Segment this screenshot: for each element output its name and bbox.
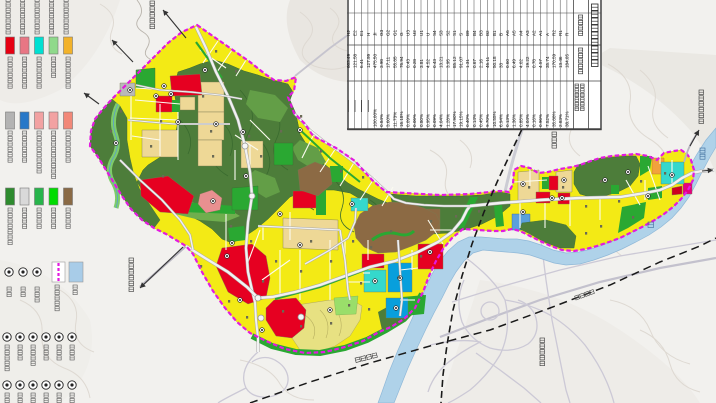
svg-text:R2: R2 [552, 30, 557, 36]
svg-text:B4: B4 [472, 30, 477, 36]
svg-text:0.80%: 0.80% [419, 114, 424, 127]
svg-text:76.94: 76.94 [399, 56, 404, 68]
svg-text:B: B [498, 33, 503, 36]
svg-text:17.90%: 17.90% [452, 111, 457, 127]
svg-text:1.31: 1.31 [465, 59, 470, 68]
svg-text:G1: G1 [392, 29, 397, 36]
svg-text:S4: S4 [432, 30, 437, 36]
svg-text:0.09%: 0.09% [432, 114, 437, 127]
svg-text:16.18%: 16.18% [399, 111, 404, 127]
svg-text:G2: G2 [386, 29, 391, 36]
svg-text:0.28: 0.28 [412, 59, 417, 68]
svg-text:4.57: 4.57 [538, 59, 543, 68]
svg-text:13.46: 13.46 [558, 56, 563, 68]
svg-text:9.70%: 9.70% [485, 114, 490, 127]
svg-text:17.11: 17.11 [386, 56, 391, 68]
svg-text:0.06%: 0.06% [412, 114, 417, 127]
svg-text:6.49: 6.49 [512, 59, 517, 68]
svg-text:6.94%: 6.94% [498, 114, 503, 127]
svg-text:91.07: 91.07 [459, 56, 464, 68]
svg-text:100.00%: 100.00% [372, 109, 377, 127]
svg-text:U3: U3 [406, 30, 411, 36]
svg-text:0.78: 0.78 [532, 59, 537, 68]
svg-text:0.84%: 0.84% [379, 114, 384, 127]
svg-text:A5: A5 [512, 30, 517, 36]
svg-text:170.59: 170.59 [552, 54, 557, 68]
svg-text:4.52: 4.52 [425, 59, 430, 68]
svg-text:19.15%: 19.15% [459, 111, 464, 127]
svg-text:E2: E2 [353, 30, 358, 36]
svg-text:B9: B9 [465, 30, 470, 36]
svg-text:A3: A3 [525, 30, 530, 36]
svg-text:U1: U1 [419, 30, 424, 36]
svg-text:127.99: 127.99 [366, 54, 371, 68]
svg-text:G: G [399, 32, 404, 36]
svg-text:0.95%: 0.95% [425, 114, 430, 127]
svg-text:0.13%: 0.13% [505, 114, 510, 127]
svg-text:1.36%: 1.36% [512, 114, 517, 127]
svg-text:0.09%: 0.09% [406, 114, 411, 127]
svg-text:0.85%: 0.85% [518, 114, 523, 127]
svg-text:3.81: 3.81 [419, 59, 424, 68]
svg-text:A2: A2 [532, 30, 537, 36]
svg-text:121.58: 121.58 [353, 54, 358, 68]
svg-text:4.04%: 4.04% [439, 114, 444, 127]
svg-text:0.67: 0.67 [472, 59, 477, 68]
svg-text:11.73%: 11.73% [392, 112, 397, 127]
svg-text:0.14%: 0.14% [472, 114, 477, 127]
svg-text:50.18: 50.18 [492, 56, 497, 68]
svg-text:38.71%: 38.71% [565, 111, 570, 127]
svg-text:35.74: 35.74 [545, 56, 550, 68]
svg-text:2.16: 2.16 [479, 59, 484, 68]
svg-text:A4: A4 [518, 30, 523, 36]
svg-text:E1: E1 [359, 30, 364, 36]
svg-text:10.55%: 10.55% [492, 111, 497, 127]
svg-text:3.95: 3.95 [445, 59, 450, 68]
svg-text:7.52%: 7.52% [545, 114, 550, 127]
svg-text:S2: S2 [445, 30, 450, 36]
svg-text:G3: G3 [379, 29, 384, 36]
svg-text:55.85: 55.85 [392, 56, 397, 68]
svg-text:R1: R1 [558, 30, 563, 36]
svg-text:U: U [425, 33, 430, 36]
svg-text:S3: S3 [439, 30, 444, 36]
svg-text:S1: S1 [452, 30, 457, 36]
svg-text:B1: B1 [492, 30, 497, 36]
svg-text:0.43: 0.43 [406, 59, 411, 68]
svg-text:46.11: 46.11 [485, 56, 490, 68]
svg-text:2.83%: 2.83% [558, 114, 563, 127]
svg-text:0.45%: 0.45% [479, 114, 484, 127]
svg-text:0.96%: 0.96% [538, 114, 543, 127]
svg-text:603.49: 603.49 [346, 54, 351, 68]
svg-text:JI: JI [372, 32, 377, 36]
svg-text:4.04%: 4.04% [525, 114, 530, 127]
svg-text:3.60%: 3.60% [386, 114, 391, 127]
svg-text:U2: U2 [412, 30, 417, 36]
svg-text:475.50: 475.50 [372, 54, 377, 68]
svg-text:A1: A1 [538, 30, 543, 36]
svg-text:1.28%: 1.28% [445, 114, 450, 127]
svg-text:33: 33 [498, 62, 503, 68]
svg-text:184.05: 184.05 [565, 54, 570, 68]
svg-text:B2: B2 [485, 30, 490, 36]
svg-text:19.22: 19.22 [525, 56, 530, 68]
svg-text:6.41: 6.41 [359, 59, 364, 68]
svg-text:A6: A6 [505, 30, 510, 36]
svg-text:B3: B3 [479, 30, 484, 36]
svg-text:3.98: 3.98 [379, 59, 384, 68]
svg-text:13.21: 13.21 [439, 56, 444, 68]
svg-text:0.60: 0.60 [505, 59, 510, 68]
svg-text:4.02: 4.02 [518, 59, 523, 68]
svg-text:0.40%: 0.40% [465, 114, 470, 127]
svg-text:S: S [459, 33, 464, 36]
svg-text:HJ: HJ [346, 30, 351, 36]
svg-text:35.88%: 35.88% [552, 111, 557, 127]
svg-text:85.12: 85.12 [452, 56, 457, 68]
svg-text:0.43: 0.43 [432, 59, 437, 68]
svg-text:H: H [366, 33, 371, 36]
svg-text:0.16%: 0.16% [532, 114, 537, 127]
